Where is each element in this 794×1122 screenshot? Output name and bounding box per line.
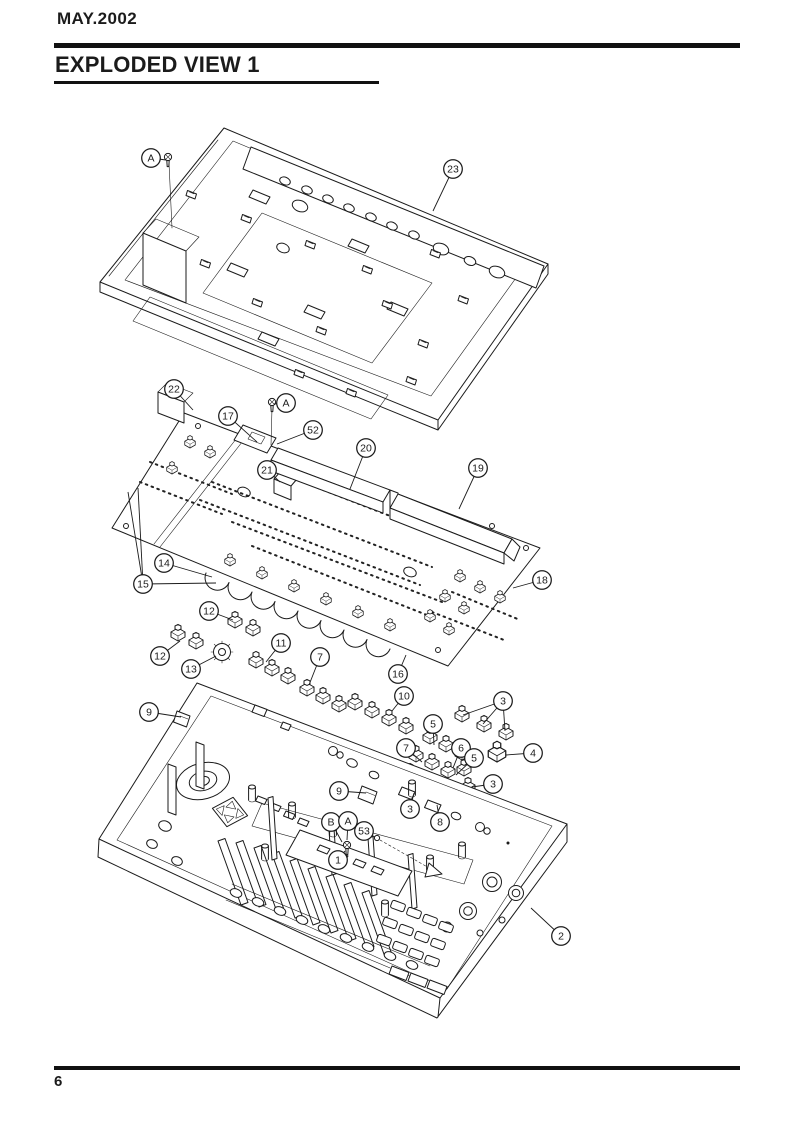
svg-text:15: 15 — [137, 579, 149, 591]
svg-text:16: 16 — [392, 669, 404, 681]
svg-text:6: 6 — [458, 743, 464, 755]
svg-text:5: 5 — [430, 719, 436, 731]
callout-19-8: 19 — [459, 459, 487, 509]
svg-text:13: 13 — [185, 664, 197, 676]
svg-text:23: 23 — [447, 164, 459, 176]
footer-rule — [54, 1066, 740, 1070]
svg-text:52: 52 — [307, 425, 319, 437]
svg-text:1: 1 — [335, 855, 341, 867]
svg-text:A: A — [282, 398, 289, 410]
svg-text:14: 14 — [158, 558, 170, 570]
callout-a-4: A — [274, 394, 295, 413]
main-pcb-layer — [112, 383, 540, 666]
svg-text:3: 3 — [407, 804, 413, 816]
svg-text:7: 7 — [403, 743, 409, 755]
svg-text:7: 7 — [317, 652, 323, 664]
callout-16-17: 16 — [389, 655, 408, 683]
callout-4-24: 4 — [506, 744, 542, 763]
svg-text:9: 9 — [336, 786, 342, 798]
svg-text:12: 12 — [154, 651, 166, 663]
svg-text:21: 21 — [261, 465, 273, 477]
svg-text:4: 4 — [530, 748, 536, 760]
page-number: 6 — [54, 1073, 62, 1090]
svg-text:B: B — [327, 817, 334, 829]
callout-12-13: 12 — [151, 641, 180, 665]
callout-2-34: 2 — [531, 908, 570, 945]
svg-text:12: 12 — [203, 606, 215, 618]
svg-text:A: A — [147, 153, 154, 165]
svg-text:5: 5 — [471, 753, 477, 765]
callout-7-16: 7 — [309, 648, 329, 685]
svg-text:19: 19 — [472, 463, 484, 475]
svg-text:8: 8 — [437, 817, 443, 829]
svg-text:A: A — [344, 816, 351, 828]
callout-23-1: 23 — [433, 160, 462, 211]
svg-text:3: 3 — [500, 696, 506, 708]
manual-page: MAY.2002 EXPLODED VIEW 1 — [0, 0, 794, 1122]
svg-text:17: 17 — [222, 411, 234, 423]
callout-12-12: 12 — [200, 602, 233, 621]
callout-a-0: A — [142, 149, 166, 168]
callout-10-18: 10 — [392, 687, 413, 711]
svg-text:3: 3 — [490, 779, 496, 791]
svg-text:2: 2 — [558, 931, 564, 943]
svg-text:11: 11 — [276, 638, 287, 650]
svg-text:18: 18 — [536, 575, 548, 587]
callout-11-15: 11 — [266, 634, 290, 662]
callout-13-14: 13 — [182, 656, 216, 678]
exploded-view-diagram: A232217A52212019141518121213117161035765… — [0, 0, 794, 1122]
exploded-view-figure: A232217A52212019141518121213117161035765… — [0, 0, 794, 1122]
top-case-layer — [98, 683, 567, 1018]
svg-text:22: 22 — [168, 384, 180, 396]
svg-text:20: 20 — [360, 443, 372, 455]
callout-1-33: 1 — [329, 851, 348, 870]
svg-text:10: 10 — [398, 691, 410, 703]
svg-text:53: 53 — [358, 826, 370, 838]
callout-52-5: 52 — [277, 421, 322, 444]
svg-text:9: 9 — [146, 707, 152, 719]
